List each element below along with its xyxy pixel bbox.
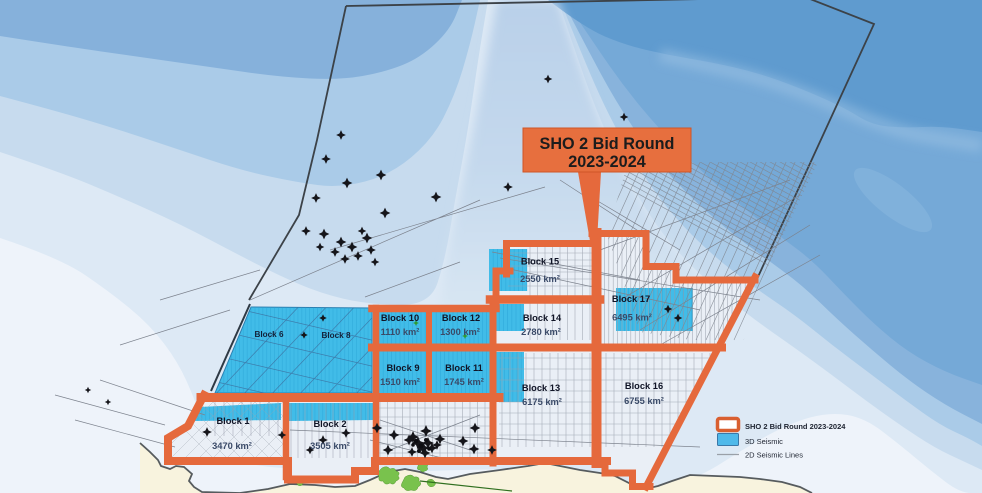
svg-text:6175 km²: 6175 km² [522,397,562,407]
svg-text:SHO 2 Bid Round: SHO 2 Bid Round [540,135,675,153]
svg-text:Block 16: Block 16 [625,381,663,391]
svg-text:Block 15: Block 15 [521,257,559,267]
svg-text:Block 1: Block 1 [216,416,249,426]
svg-text:Block 17: Block 17 [612,294,650,304]
svg-text:Block 8: Block 8 [321,331,351,340]
svg-text:Block 6: Block 6 [254,330,284,339]
svg-text:2D Seismic Lines: 2D Seismic Lines [745,451,803,460]
svg-text:Block 13: Block 13 [522,383,560,393]
svg-text:Block 10: Block 10 [381,313,419,323]
svg-text:6755 km²: 6755 km² [624,396,664,406]
svg-text:Block 14: Block 14 [523,313,562,323]
svg-text:Block 11: Block 11 [445,363,483,373]
svg-text:Block 2: Block 2 [313,419,346,429]
svg-text:3D Seismic: 3D Seismic [745,437,783,446]
svg-text:1300 km²: 1300 km² [440,327,480,337]
svg-text:2023-2024: 2023-2024 [568,153,645,171]
svg-text:Block 12: Block 12 [442,313,480,323]
svg-text:1510 km²: 1510 km² [380,377,420,387]
svg-text:2550 km²: 2550 km² [520,274,560,284]
svg-text:3470 km²: 3470 km² [212,441,252,451]
svg-text:6495 km²: 6495 km² [612,313,652,323]
svg-text:3505 km²: 3505 km² [310,441,350,451]
svg-text:Block 9: Block 9 [386,363,419,373]
svg-text:1110 km²: 1110 km² [381,327,420,337]
svg-text:SHO 2 Bid Round 2023-2024: SHO 2 Bid Round 2023-2024 [745,422,846,431]
svg-text:1745 km²: 1745 km² [444,377,484,387]
svg-text:2780 km²: 2780 km² [521,327,561,337]
